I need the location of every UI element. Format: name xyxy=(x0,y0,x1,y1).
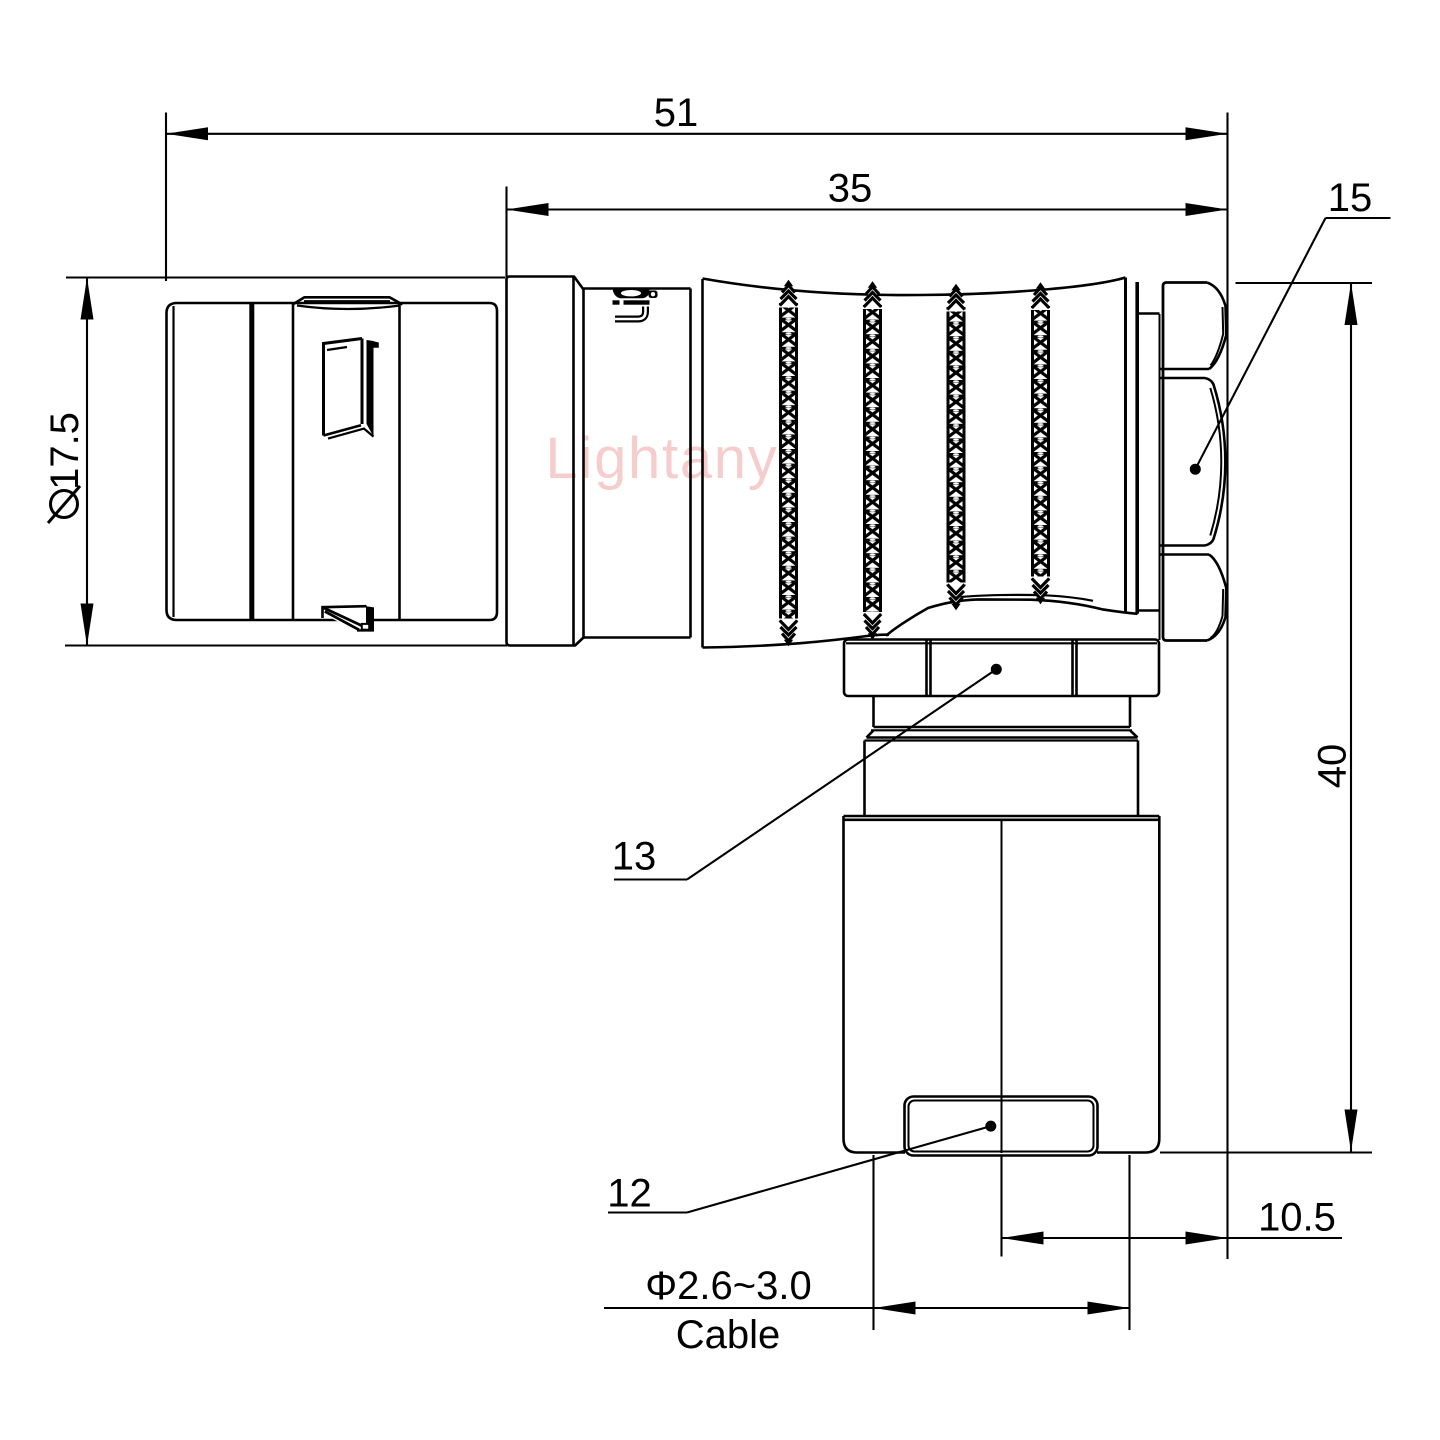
svg-text:Φ2.6~3.0: Φ2.6~3.0 xyxy=(645,1264,811,1308)
svg-text:17.5: 17.5 xyxy=(43,412,87,490)
svg-text:10.5: 10.5 xyxy=(1258,1196,1336,1240)
svg-text:35: 35 xyxy=(828,167,873,211)
svg-text:40: 40 xyxy=(1311,744,1355,789)
svg-text:12: 12 xyxy=(607,1172,652,1216)
svg-text:13: 13 xyxy=(612,835,657,879)
svg-text:15: 15 xyxy=(1328,176,1373,220)
svg-text:51: 51 xyxy=(654,91,699,135)
svg-text:Cable: Cable xyxy=(676,1313,781,1357)
svg-text:Lightany: Lightany xyxy=(546,426,779,491)
